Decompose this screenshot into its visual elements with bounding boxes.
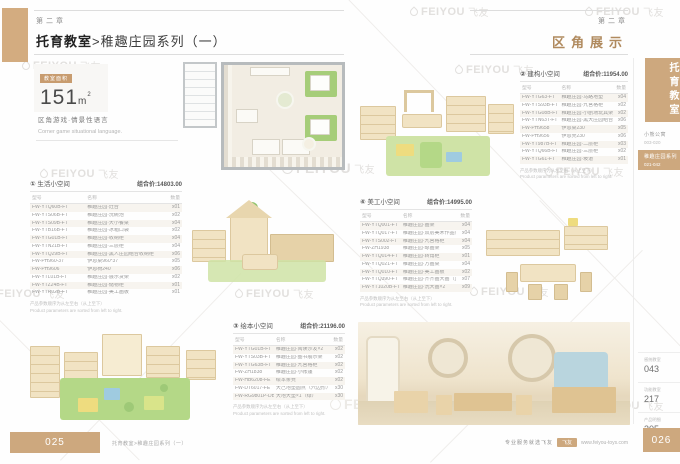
rug-patch	[396, 144, 414, 156]
header-rule-top-right	[470, 10, 628, 11]
table-row: FW-YTR02B-FT稚趣庄园·美工画板x01	[30, 289, 182, 297]
floorplan-image	[183, 60, 345, 172]
floorplan-round-rug	[276, 91, 294, 109]
product-image-art	[476, 202, 630, 314]
table-row: FW-YTS002-FT稚趣庄园·九宫格柜x04	[360, 238, 472, 246]
table-row: FW-YTG01B-FT稚趣庄园·收纳柜x04	[30, 235, 182, 243]
table-row: FW-PH9658伊恩桌230x05	[520, 125, 628, 133]
sidebar-item-xiaoxiong: 小熊公寓 003-020	[638, 128, 680, 148]
art-low-cabinet	[564, 226, 608, 250]
product-table-living: ① 生活小空间 组合价:14803.00 型号名称数量 FW-YTQ60B-FT…	[30, 178, 182, 314]
floorplan-room	[221, 62, 345, 170]
area-value: 151m2	[40, 87, 102, 108]
feiyou-logo: 飞友	[557, 438, 577, 447]
table-column-headers: 型号名称数量	[360, 209, 472, 222]
rug-mat	[144, 396, 164, 410]
table-row: FW-PH9656伊恩凳230x06	[520, 133, 628, 141]
photo-round-mirror	[428, 338, 468, 378]
table-title: ② 建构小空间	[520, 68, 560, 78]
footer-url: www.feiyou-toys.com	[581, 440, 628, 446]
footer-slogan: 专业服务就选飞友	[505, 439, 553, 446]
reading-tall-cabinet	[30, 346, 60, 398]
floorplan-floor-strip	[224, 157, 342, 167]
table-row: FW-YTQ001-FT稚趣庄园·画架x04	[360, 222, 472, 230]
table-row: FW-YTQ010-FT稚趣庄园·美工画板x02	[360, 269, 472, 277]
table-rows: FW-YTG63-FT稚趣庄园·马路地垫x04FW-YTS93B-FT稚趣庄园·…	[520, 94, 628, 164]
sidebar-item-zhiqu-active: 稚趣庄园系列 021-042	[638, 150, 680, 170]
photo-cabinet	[552, 387, 616, 413]
page-number-right: 026	[643, 428, 680, 452]
block-shelf	[360, 106, 396, 140]
block-bench	[402, 114, 442, 128]
page-title-bold: 托育教室	[36, 34, 92, 49]
floorplan-cabinet	[252, 139, 280, 155]
chapter-label-left: 第二章	[36, 16, 66, 26]
table-row: FW-ZH1838稚趣庄园·小帐篷x02	[233, 369, 345, 377]
table-row: FW-DT6017-FE大己地垫圆点（六边形）x30	[233, 385, 345, 393]
table-row: FW-YTG08B-FT稚趣庄园·小剧场玩具架x02	[520, 110, 628, 118]
kitchen-roof	[226, 200, 272, 218]
table-row: FW-YTB16B-FT稚趣庄园·冰箱口袋x02	[30, 227, 182, 235]
product-image-living	[190, 194, 342, 292]
table-row: FW-RG9801P-DB大地大垫×1（绿）x30	[233, 393, 345, 401]
product-table-art: ④ 美工小空间 组合价:14995.00 型号名称数量 FW-YTQ001-FT…	[360, 196, 472, 309]
page-title-rest: >稚趣庄园系列（一）	[92, 34, 227, 49]
table-price: 组合价:11954.00	[583, 69, 628, 78]
table-row: FW-YT1020B-FT稚趣庄园·洗大画×2x09	[360, 284, 472, 292]
product-image-reading	[26, 322, 226, 424]
photo-kids-chair	[436, 395, 452, 415]
header-rule-bottom-right	[470, 54, 628, 55]
art-low-cabinet	[486, 230, 560, 256]
table-note: 产品参数顺序为从左至右（从上至下）Product parameters are …	[233, 404, 345, 417]
floorplan-closet	[183, 62, 217, 128]
table-row: FW-YTN21B-FT稚趣庄园·三层柜x04	[30, 243, 182, 251]
table-row: FW-YTQ29B-FT稚趣庄园·黑人庄园组合收纳柜x06	[30, 251, 182, 259]
floorplan-bed	[310, 119, 330, 135]
product-table-reading: ③ 绘本小空间 组合价:21196.00 型号名称数量 FW-YTG01B-FT…	[233, 320, 345, 417]
page-number-left: 025	[10, 432, 100, 453]
table-price: 组合价:21196.00	[300, 321, 345, 330]
feiyou-drop-icon	[408, 6, 419, 17]
table-row: FW-YTG63B-FT稚趣庄园·九宫格柜x02	[233, 362, 345, 370]
table-price: 组合价:14803.00	[137, 179, 182, 188]
rug-patch	[446, 152, 462, 162]
floorplan-rug	[305, 71, 337, 97]
table-row: FW-YTQ017-FT稚趣庄园·双层美术作品架x04	[360, 230, 472, 238]
photo-round-mirror	[508, 334, 556, 382]
area-badge: 教室面积	[40, 74, 72, 83]
floorplan-table	[302, 137, 316, 151]
sidebar-section: 功能教室 217	[638, 382, 680, 406]
art-chair	[506, 272, 518, 292]
floorplan-shelf	[250, 67, 290, 76]
table-column-headers: 型号名称数量	[233, 333, 345, 346]
floorplan-floor-strip	[224, 65, 232, 167]
photo-kids-table	[454, 393, 512, 411]
floorplan-bed	[310, 75, 330, 91]
product-table-blocks: ② 建构小空间 组合价:11954.00 型号名称数量 FW-YTG63-FT稚…	[520, 68, 628, 181]
table-header: ③ 绘本小空间 组合价:21196.00	[233, 320, 345, 333]
table-row: FW-YTG63-FT稚趣庄园·马路地垫x04	[520, 94, 628, 102]
page-title-right: 区角展示	[470, 32, 628, 51]
art-chair	[528, 284, 542, 300]
reading-display	[186, 350, 216, 380]
table-row: FW-YTL01B-FT稚趣庄园·展示货架x02	[30, 274, 182, 282]
header-rule-bottom-left	[34, 54, 344, 55]
sidebar-section: 感统教室 043	[638, 352, 680, 376]
kitchen-table	[242, 254, 278, 270]
photo-cabinet	[394, 391, 428, 413]
table-row: FW-YTQ390-FT稚趣庄园·齐齐画大画（蓝白）x07	[360, 276, 472, 284]
rug-patch	[420, 142, 442, 168]
table-row: FW-YTZ24B-FT稚趣庄园·储物柜x01	[30, 282, 182, 290]
kitchen-low-cabinet	[270, 234, 334, 262]
reading-display	[146, 346, 180, 378]
photo-blue-structure	[554, 352, 608, 388]
art-chair	[580, 272, 592, 292]
table-price: 组合价:14995.00	[427, 197, 472, 206]
tagline-en: Corner game situational language.	[38, 129, 122, 135]
table-rows: FW-YTQ001-FT稚趣庄园·画架x04FW-YTQ017-FT稚趣庄园·双…	[360, 222, 472, 292]
photo-kids-chair	[516, 395, 532, 415]
tagline-cn: 区角游戏·情景性语言	[38, 114, 109, 124]
tagline-divider	[36, 140, 178, 141]
footer-breadcrumb: 托育教室>稚趣庄园系列（一）	[112, 440, 187, 447]
table-header: ① 生活小空间 组合价:14803.00	[30, 178, 182, 191]
table-row: FW-YTQ60B-FT稚趣庄园·灶台x01	[30, 204, 182, 212]
table-note: 产品参数顺序为从左至右（从上至下）Product parameters are …	[360, 296, 472, 309]
rug-mat	[78, 398, 98, 412]
table-column-headers: 型号名称数量	[30, 191, 182, 204]
rug-dot	[160, 384, 168, 392]
table-rows: FW-YTG01B-FT稚趣庄园·阅读沙发×2x02FW-YTS03B-FT稚趣…	[233, 346, 345, 400]
table-row: FW-YTS09B-FT稚趣庄园·大小餐桌x04	[30, 220, 182, 228]
table-row: FW-HB6208-FE绘本条凳x02	[233, 377, 345, 385]
table-row: FW-YTQ021-FT稚趣庄园·方画桌x04	[360, 261, 472, 269]
reading-canopy	[102, 334, 142, 376]
table-row: FW-YTS03B-FT稚趣庄园·图书展示架x02	[233, 354, 345, 362]
art-table	[520, 264, 576, 282]
table-column-headers: 型号名称数量	[520, 81, 628, 94]
art-chair	[554, 284, 568, 300]
table-row: FW-YTS06B-FT稚趣庄园·洗碗池x02	[30, 212, 182, 220]
table-row: FW-ZH1938稚趣庄园·晾画架x05	[360, 245, 472, 253]
block-shelf	[446, 96, 486, 132]
classroom-area-card: 教室面积 151m2	[34, 64, 108, 112]
kitchen-shelf	[192, 230, 226, 262]
catalog-spread: FEIYOU飞友 FEIYOU飞友 FEIYOU飞友 FEIYOU飞友 FEIY…	[0, 0, 680, 464]
table-row: FW-YT987B-FT稚趣庄园·二层柜x03	[520, 141, 628, 149]
table-header: ② 建构小空间 组合价:11954.00	[520, 68, 628, 81]
table-header: ④ 美工小空间 组合价:14995.00	[360, 196, 472, 209]
header-rule-top-left	[34, 10, 344, 11]
table-rows: FW-YTQ60B-FT稚趣庄园·灶台x01FW-YTS06B-FT稚趣庄园·洗…	[30, 204, 182, 297]
table-row: FW-YTS93B-FT稚趣庄园·九宫格柜x02	[520, 102, 628, 110]
table-row: FW-YTQ014-FT稚趣庄园·转角柜x01	[360, 253, 472, 261]
floorplan-cabinet	[236, 109, 258, 123]
footer-brand: 专业服务就选飞友 飞友 www.feiyou-toys.com	[505, 438, 628, 447]
art-toy	[568, 218, 578, 226]
table-title: ③ 绘本小空间	[233, 320, 273, 330]
classroom-photo	[358, 322, 630, 425]
sidebar-divider	[633, 58, 634, 424]
table-note: 产品参数顺序为从左至右（从上至下）Product parameters are …	[520, 168, 628, 181]
table-row: FW-YTQ66B-FT稚趣庄园·三层柜x02	[520, 148, 628, 156]
rug-mat	[104, 388, 120, 400]
table-row: FW-PH9606伊恩椅240x06	[30, 266, 182, 274]
reading-rug	[60, 378, 190, 420]
table-row: FW-PH960-37伊恩桌960*37x05	[30, 258, 182, 266]
table-row: FW-YTN63T-FT稚趣庄园·黑大庄园组合收纳柜x06	[520, 117, 628, 125]
chapter-label-right: 第二章	[470, 16, 628, 26]
rug-dot	[124, 402, 134, 412]
block-rug	[386, 136, 490, 176]
table-note: 产品参数顺序为从左至右（从上至下）Product parameters are …	[30, 301, 182, 314]
product-image-blocks	[358, 74, 516, 186]
table-row: FW-YTG61-FT稚趣庄园·坡道x01	[520, 156, 628, 164]
table-title: ① 生活小空间	[30, 178, 70, 188]
table-title: ④ 美工小空间	[360, 196, 400, 206]
sidebar-tab-tuoyu: 托育教室	[645, 58, 680, 122]
block-shelf	[488, 104, 514, 134]
page-title-left: 托育教室>稚趣庄园系列（一）	[36, 31, 227, 50]
table-row: FW-YTG01B-FT稚趣庄园·阅读沙发×2x02	[233, 346, 345, 354]
block-gantry	[404, 90, 434, 112]
left-page-edge-tab	[2, 8, 28, 62]
